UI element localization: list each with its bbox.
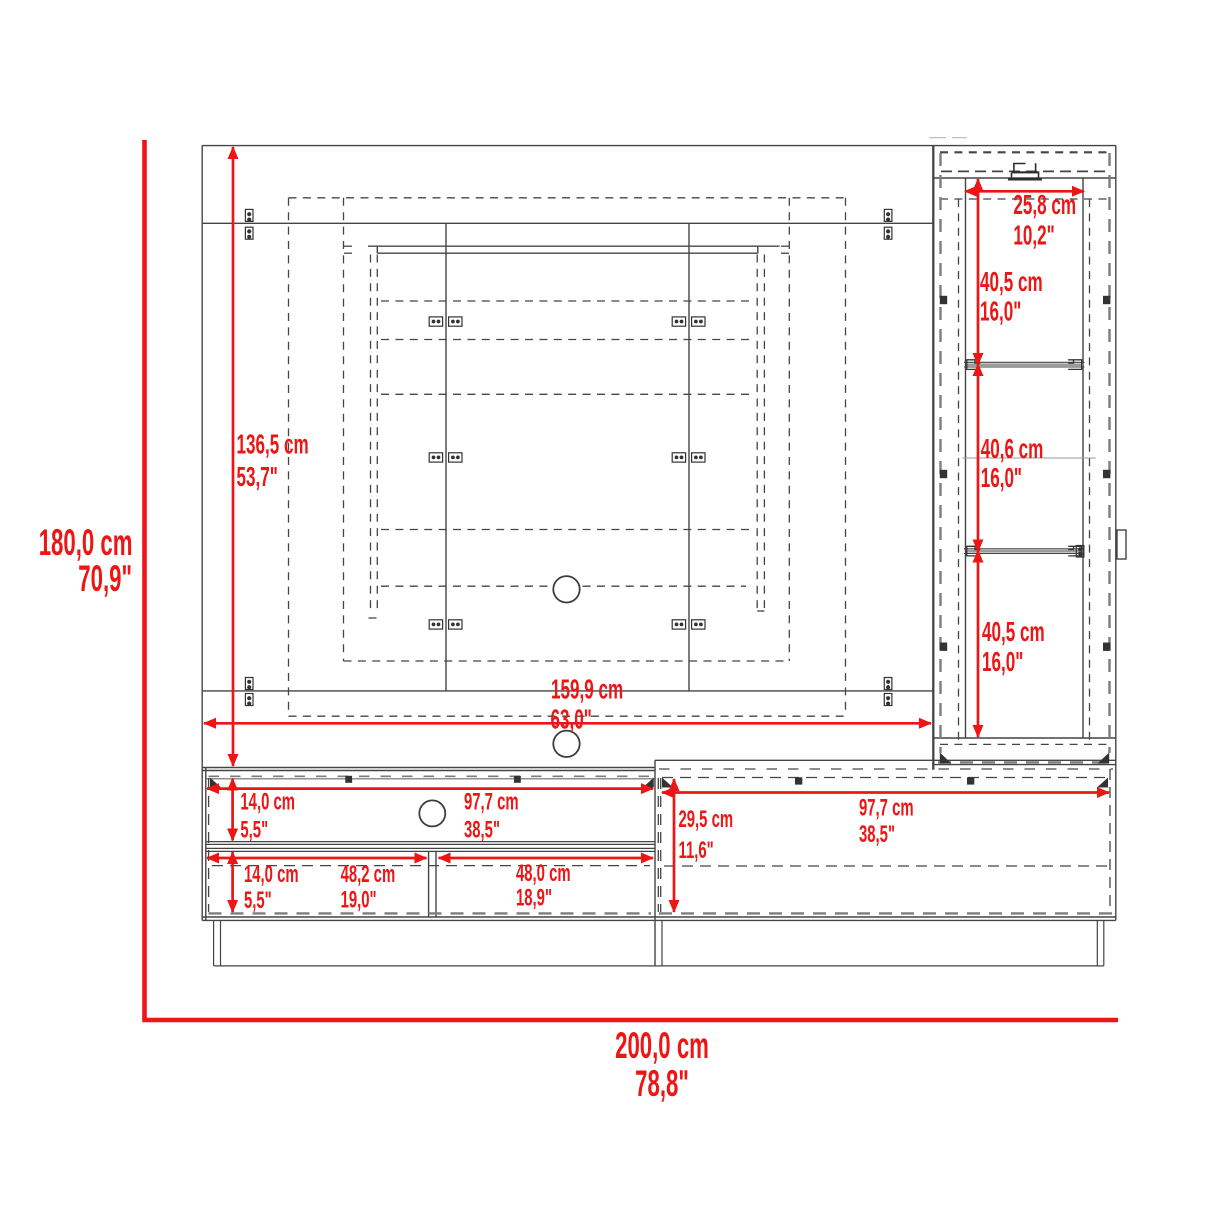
svg-text:48,2 cm: 48,2 cm (341, 862, 396, 888)
svg-text:63,0": 63,0" (551, 703, 592, 734)
svg-text:5,5": 5,5" (240, 817, 268, 843)
svg-text:19,0": 19,0" (341, 887, 377, 913)
svg-text:97,7 cm: 97,7 cm (859, 795, 914, 821)
svg-text:40,5 cm: 40,5 cm (980, 266, 1043, 297)
svg-text:16,0": 16,0" (981, 462, 1022, 493)
svg-text:53,7": 53,7" (237, 461, 278, 492)
svg-text:14,0 cm: 14,0 cm (240, 789, 295, 815)
svg-text:200,0 cm: 200,0 cm (615, 1025, 709, 1066)
svg-text:10,2": 10,2" (1013, 219, 1054, 250)
svg-text:25,8 cm: 25,8 cm (1013, 189, 1076, 220)
svg-text:11,6": 11,6" (679, 838, 714, 864)
svg-text:40,6 cm: 40,6 cm (981, 433, 1044, 464)
svg-text:38,5": 38,5" (859, 822, 895, 848)
svg-text:48,0 cm: 48,0 cm (516, 861, 571, 887)
svg-text:5,5": 5,5" (244, 888, 272, 914)
svg-text:16,0": 16,0" (982, 646, 1023, 677)
svg-text:18,9": 18,9" (516, 885, 552, 911)
svg-text:159,9 cm: 159,9 cm (551, 673, 623, 704)
svg-text:97,7 cm: 97,7 cm (464, 789, 519, 815)
svg-text:14,0 cm: 14,0 cm (244, 862, 299, 888)
svg-text:38,5": 38,5" (464, 817, 500, 843)
svg-text:40,5 cm: 40,5 cm (982, 616, 1045, 647)
svg-text:16,0": 16,0" (980, 295, 1021, 326)
svg-text:78,8": 78,8" (635, 1063, 689, 1104)
svg-text:136,5 cm: 136,5 cm (237, 428, 309, 459)
svg-text:29,5 cm: 29,5 cm (679, 807, 734, 833)
svg-text:70,9": 70,9" (78, 558, 132, 599)
